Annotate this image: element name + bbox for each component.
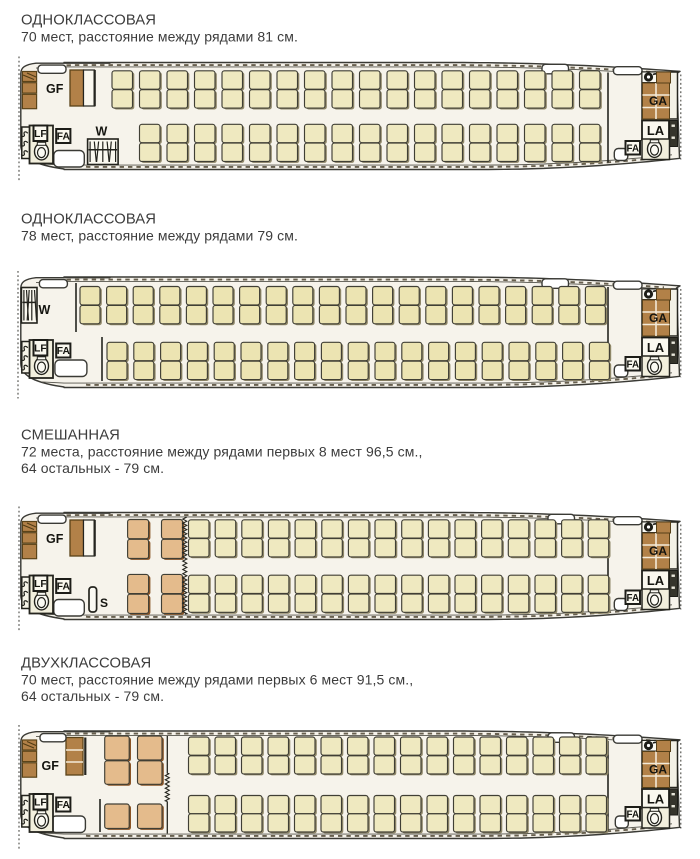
svg-text:GA: GA [649,94,667,108]
svg-text:64 остальных - 79 см.: 64 остальных - 79 см. [21,460,164,476]
svg-text:LA: LA [647,573,665,588]
svg-text:LF: LF [34,579,46,590]
svg-text:FA: FA [57,132,71,143]
svg-text:72 места, расстояние между ряд: 72 места, расстояние между рядами первых… [21,443,422,459]
svg-text:GF: GF [46,82,64,96]
svg-text:FA: FA [627,359,640,370]
svg-text:FA: FA [627,593,640,604]
svg-text:GF: GF [42,759,60,773]
svg-text:W: W [96,125,108,139]
svg-text:FA: FA [627,143,640,154]
svg-text:FA: FA [57,800,71,811]
svg-text:LF: LF [34,797,46,808]
svg-text:GA: GA [649,763,667,777]
svg-text:СМЕШАННАЯ: СМЕШАННАЯ [21,428,120,444]
svg-text:W: W [39,303,51,317]
svg-text:FA: FA [57,582,71,593]
svg-text:LA: LA [647,791,665,806]
svg-text:78 мест, расстояние между ряда: 78 мест, расстояние между рядами 79 см. [21,227,298,243]
svg-text:LF: LF [34,129,46,140]
svg-text:LF: LF [34,343,46,354]
svg-text:S: S [100,596,108,610]
svg-text:64 остальных - 79 см.: 64 остальных - 79 см. [21,688,164,704]
svg-text:70 мест, расстояние между ряда: 70 мест, расстояние между рядами первых … [21,671,413,687]
svg-text:GF: GF [46,532,64,546]
svg-text:LA: LA [647,340,665,355]
svg-text:GA: GA [649,544,667,558]
svg-text:LA: LA [647,123,665,138]
svg-text:FA: FA [57,346,71,357]
svg-text:FA: FA [627,809,640,820]
svg-text:ДВУХКЛАССОВАЯ: ДВУХКЛАССОВАЯ [21,656,151,672]
svg-text:70 мест, расстояние между ряда: 70 мест, расстояние между рядами 81 см. [21,28,298,44]
svg-text:ОДНОКЛАССОВАЯ: ОДНОКЛАССОВАЯ [21,212,156,228]
svg-text:GA: GA [649,311,667,325]
svg-text:ОДНОКЛАССОВАЯ: ОДНОКЛАССОВАЯ [21,13,156,29]
